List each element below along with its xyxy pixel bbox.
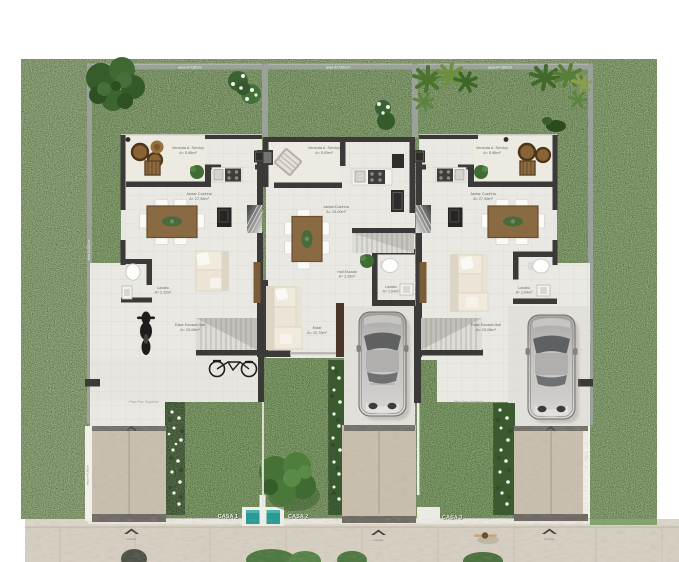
svg-text:A= 27,56m²: A= 27,56m²	[189, 197, 209, 201]
svg-text:A= 3,29m²: A= 3,29m²	[339, 275, 356, 279]
svg-text:Lavabo: Lavabo	[518, 286, 530, 290]
svg-text:A= 27,56m²: A= 27,56m²	[473, 197, 493, 201]
svg-text:A= 2,12m²: A= 2,12m²	[155, 291, 172, 295]
svg-text:A= 5,09m²: A= 5,09m²	[315, 151, 333, 155]
svg-text:Veranda A. Serviço: Veranda A. Serviço	[476, 146, 508, 150]
svg-text:Jantar Cozinha: Jantar Cozinha	[470, 192, 496, 196]
svg-text:Veranda A. Serviço: Veranda A. Serviço	[172, 146, 204, 150]
svg-text:Veranda A. Serviço: Veranda A. Serviço	[308, 146, 340, 150]
svg-text:Lavabo: Lavabo	[157, 286, 169, 290]
svg-text:A= 5,98m²: A= 5,98m²	[483, 151, 501, 155]
svg-text:Lavabo: Lavabo	[385, 285, 397, 289]
svg-text:A= 2,04m²: A= 2,04m²	[516, 291, 533, 295]
svg-text:area A=180cm: area A=180cm	[326, 66, 350, 70]
svg-text:A= 15,08m²: A= 15,08m²	[180, 328, 200, 332]
svg-text:A= 2,04m²: A= 2,04m²	[383, 290, 400, 294]
svg-text:A= 15,00m²: A= 15,00m²	[326, 210, 346, 214]
svg-text:A= 12,70m²: A= 12,70m²	[307, 331, 327, 335]
svg-text:Estar Escada Hall: Estar Escada Hall	[471, 323, 501, 327]
svg-text:Piso Pav. Superior: Piso Pav. Superior	[129, 400, 159, 404]
svg-text:A= 15,08m²: A= 15,08m²	[476, 328, 496, 332]
svg-text:muro h=180cm: muro h=180cm	[86, 464, 90, 485]
svg-text:area A=180cm: area A=180cm	[178, 66, 202, 70]
svg-text:Estar Escada Hall: Estar Escada Hall	[175, 323, 205, 327]
svg-text:A= 5,98m²: A= 5,98m²	[179, 151, 197, 155]
svg-text:Jantar Cozinha: Jantar Cozinha	[186, 192, 212, 196]
svg-text:Piso Pav. Superior: Piso Pav. Superior	[454, 400, 484, 404]
svg-text:area A=220cm: area A=220cm	[87, 239, 91, 260]
svg-text:Jantar/Cozinha: Jantar/Cozinha	[323, 205, 349, 209]
svg-text:Estar: Estar	[313, 326, 323, 330]
svg-text:Hall Escada: Hall Escada	[337, 270, 356, 274]
svg-text:area A=180cm: area A=180cm	[488, 66, 512, 70]
